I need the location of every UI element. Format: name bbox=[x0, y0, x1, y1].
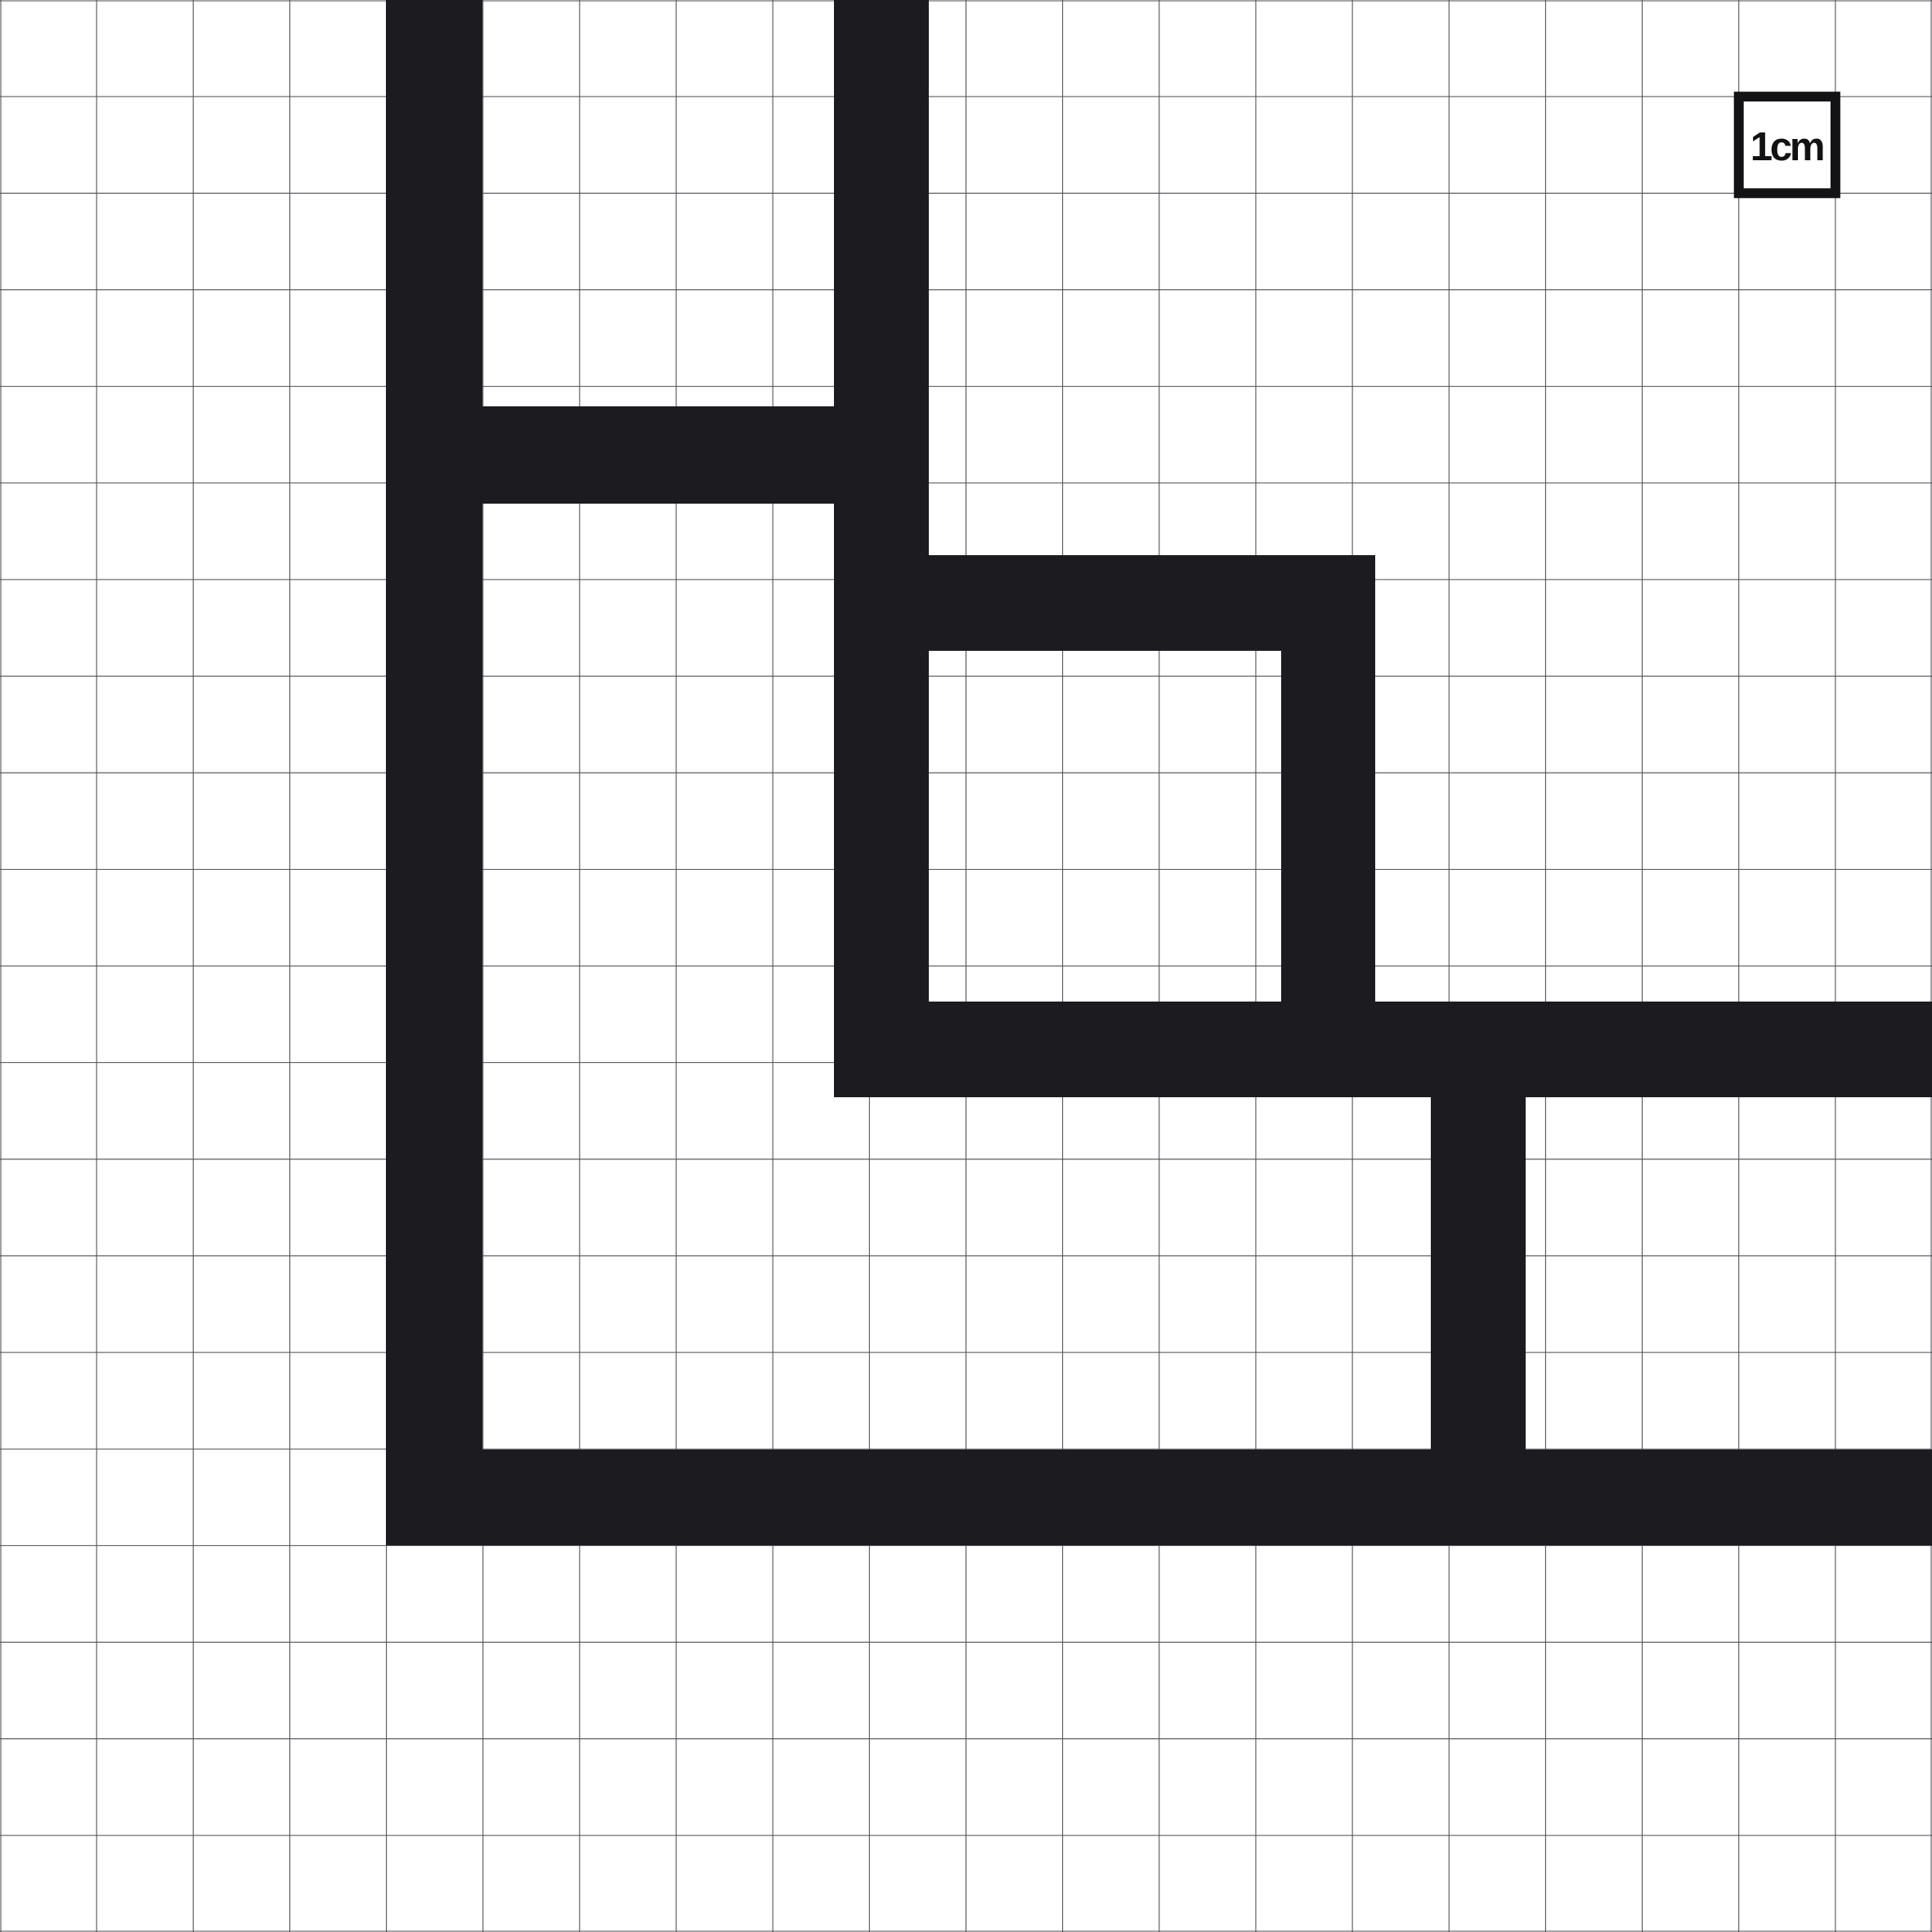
svg-text:1cm: 1cm bbox=[1750, 125, 1823, 169]
